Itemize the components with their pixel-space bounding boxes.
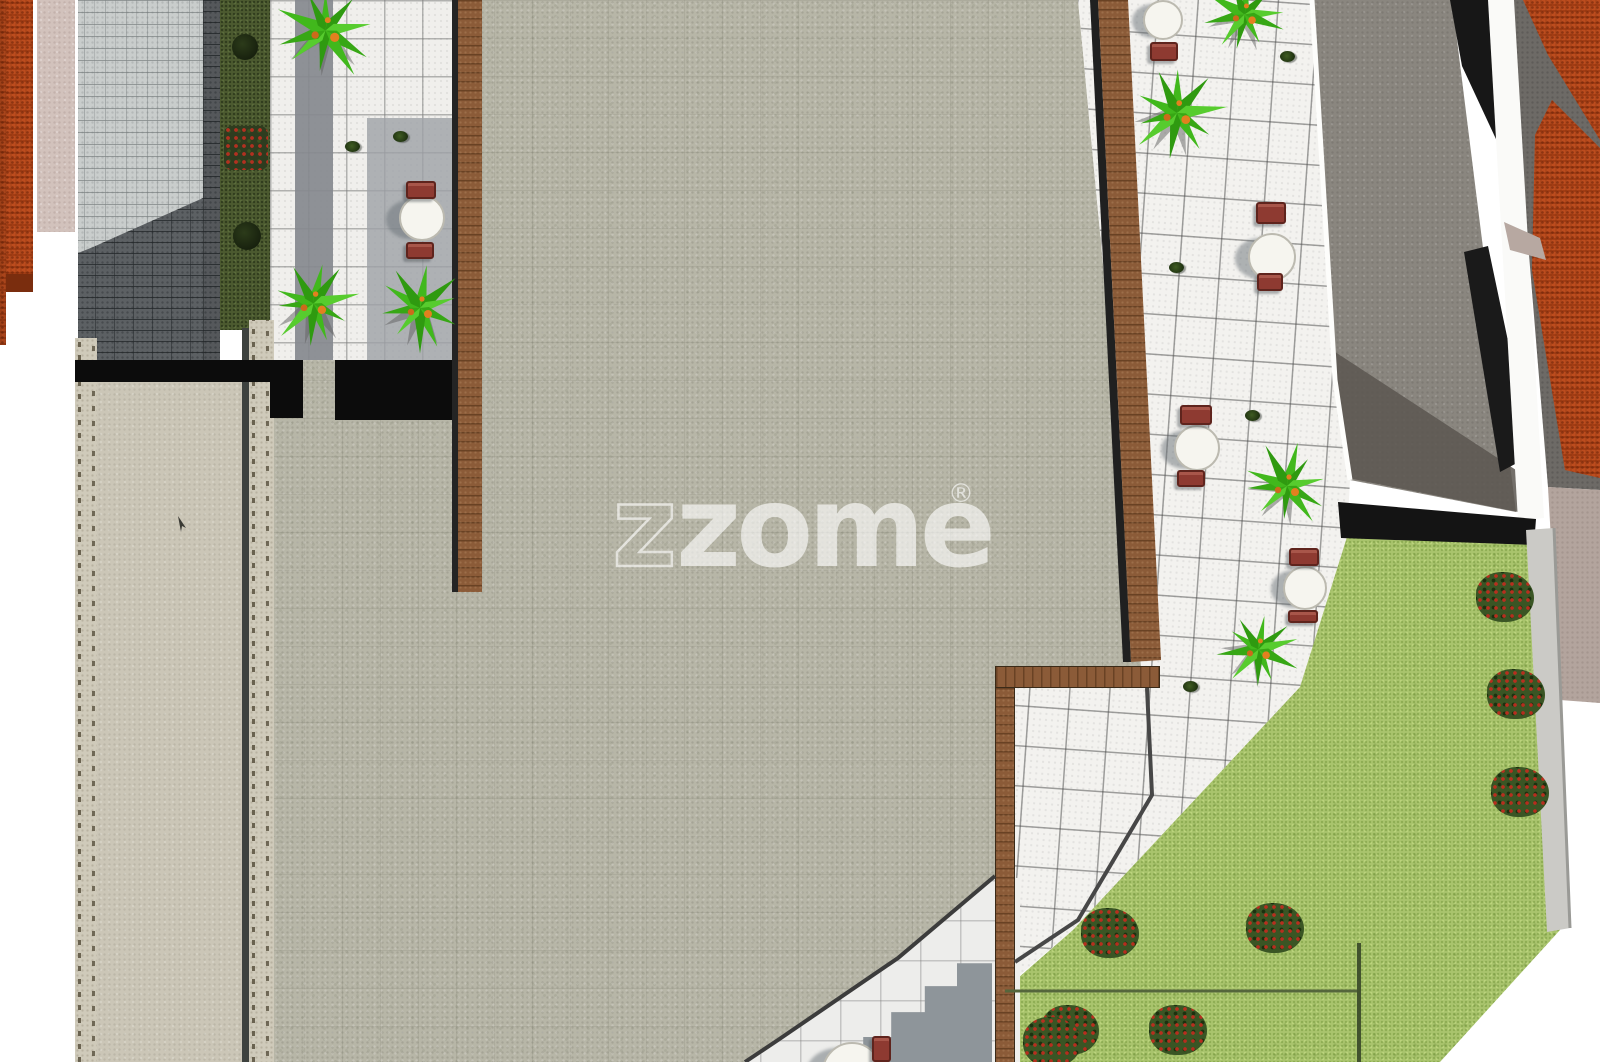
zome-watermark: z zome ®: [0, 0, 1600, 1062]
site-plan-render: z zome ®: [0, 0, 1600, 1062]
watermark-outline-letter: z: [612, 463, 672, 593]
watermark-text: zome: [676, 463, 991, 593]
watermark-registered: ®: [948, 479, 974, 509]
